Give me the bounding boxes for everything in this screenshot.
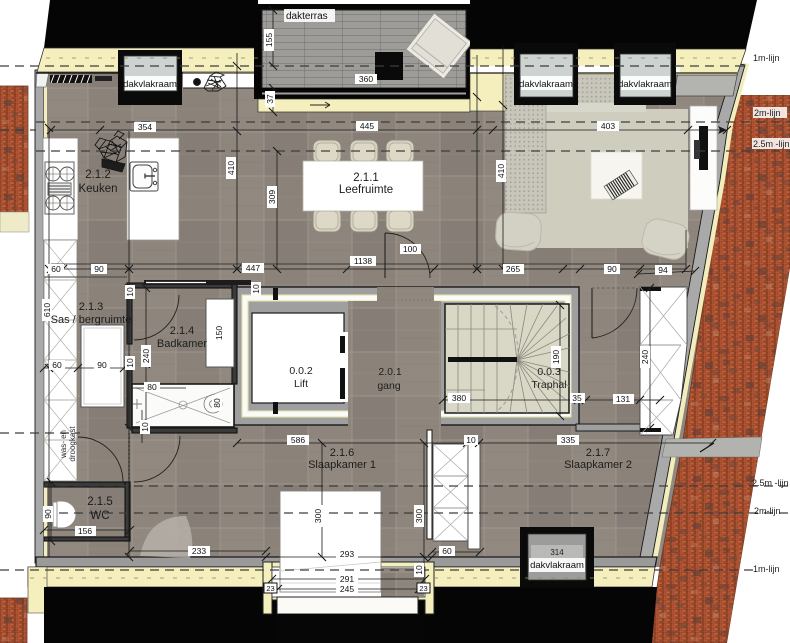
svg-text:23: 23 [266, 584, 274, 593]
svg-text:309: 309 [267, 190, 277, 204]
svg-text:Slaapkamer 2: Slaapkamer 2 [564, 459, 632, 471]
svg-text:1m-lijn: 1m-lijn [753, 564, 780, 574]
svg-text:291: 291 [340, 574, 354, 584]
svg-text:10: 10 [125, 287, 135, 297]
svg-text:dakvlakraam: dakvlakraam [519, 79, 573, 90]
svg-text:10: 10 [466, 435, 476, 445]
svg-text:60: 60 [52, 360, 62, 370]
svg-text:Badkamer: Badkamer [157, 338, 207, 350]
svg-text:94: 94 [658, 265, 668, 275]
svg-text:dakvlakraam: dakvlakraam [618, 79, 672, 90]
svg-text:Slaapkamer 1: Slaapkamer 1 [308, 459, 376, 471]
svg-text:354: 354 [138, 122, 152, 132]
svg-text:37: 37 [265, 94, 275, 104]
svg-text:Sas / bergruimte: Sas / bergruimte [51, 314, 132, 326]
svg-text:300: 300 [414, 509, 424, 523]
svg-text:2.1.7: 2.1.7 [586, 447, 610, 459]
svg-text:2m-lijn: 2m-lijn [754, 506, 781, 516]
svg-text:131: 131 [616, 394, 630, 404]
svg-text:265: 265 [506, 264, 520, 274]
svg-text:90: 90 [43, 509, 53, 519]
svg-text:314: 314 [550, 548, 564, 557]
svg-text:2.1.6: 2.1.6 [330, 447, 354, 459]
svg-text:23: 23 [419, 584, 427, 593]
svg-text:150: 150 [214, 326, 224, 340]
svg-text:60: 60 [51, 264, 61, 274]
svg-text:WC: WC [90, 510, 109, 522]
svg-text:2.1.2: 2.1.2 [85, 169, 111, 181]
svg-text:240: 240 [141, 349, 151, 363]
svg-text:80: 80 [147, 382, 157, 392]
svg-text:35: 35 [572, 393, 582, 403]
svg-text:190: 190 [551, 350, 561, 364]
svg-text:1138: 1138 [354, 256, 373, 266]
svg-text:10: 10 [125, 358, 135, 368]
svg-text:380: 380 [452, 393, 466, 403]
svg-text:156: 156 [78, 526, 92, 536]
svg-text:2.5m -lijn: 2.5m -lijn [752, 478, 789, 488]
svg-text:gang: gang [377, 380, 401, 392]
svg-text:300: 300 [313, 509, 323, 523]
svg-text:2.1.1: 2.1.1 [353, 172, 379, 184]
svg-text:1m-lijn: 1m-lijn [753, 53, 780, 63]
svg-text:2.1.5: 2.1.5 [87, 496, 113, 508]
svg-text:360: 360 [359, 74, 373, 84]
svg-text:dakterras: dakterras [286, 11, 328, 22]
svg-text:90: 90 [607, 264, 617, 274]
svg-text:100: 100 [403, 244, 417, 254]
svg-text:335: 335 [561, 435, 575, 445]
svg-text:245: 245 [340, 584, 354, 594]
svg-text:dakvlakraam: dakvlakraam [123, 79, 177, 90]
svg-text:410: 410 [226, 161, 236, 175]
svg-text:2m-lijn: 2m-lijn [754, 108, 781, 118]
svg-text:Traphal: Traphal [531, 379, 566, 391]
svg-text:10: 10 [251, 284, 261, 294]
svg-text:447: 447 [246, 263, 260, 273]
svg-text:586: 586 [291, 435, 305, 445]
svg-text:293: 293 [340, 549, 354, 559]
svg-text:dakvlakraam: dakvlakraam [530, 560, 584, 571]
svg-text:droogkast: droogkast [68, 426, 77, 462]
svg-text:240: 240 [640, 350, 650, 364]
svg-text:80: 80 [212, 398, 222, 408]
svg-text:445: 445 [360, 121, 374, 131]
svg-text:Leefruimte: Leefruimte [339, 184, 393, 196]
svg-text:90: 90 [97, 360, 107, 370]
svg-text:233: 233 [192, 546, 206, 556]
svg-text:10: 10 [140, 422, 150, 432]
svg-text:2.0.1: 2.0.1 [378, 366, 402, 378]
svg-text:Lift: Lift [294, 378, 308, 390]
svg-text:2.1.3: 2.1.3 [79, 301, 103, 313]
svg-text:60: 60 [442, 546, 452, 556]
svg-text:410: 410 [496, 164, 506, 178]
svg-text:was- en: was- en [59, 430, 68, 459]
svg-text:10: 10 [414, 565, 424, 575]
svg-text:403: 403 [601, 121, 615, 131]
svg-text:155: 155 [264, 33, 274, 47]
svg-text:2.5m -lijn: 2.5m -lijn [753, 139, 790, 149]
svg-text:Keuken: Keuken [78, 183, 117, 195]
svg-text:90: 90 [94, 264, 104, 274]
svg-text:0.0.2: 0.0.2 [289, 365, 313, 377]
svg-text:2.1.4: 2.1.4 [170, 325, 194, 337]
